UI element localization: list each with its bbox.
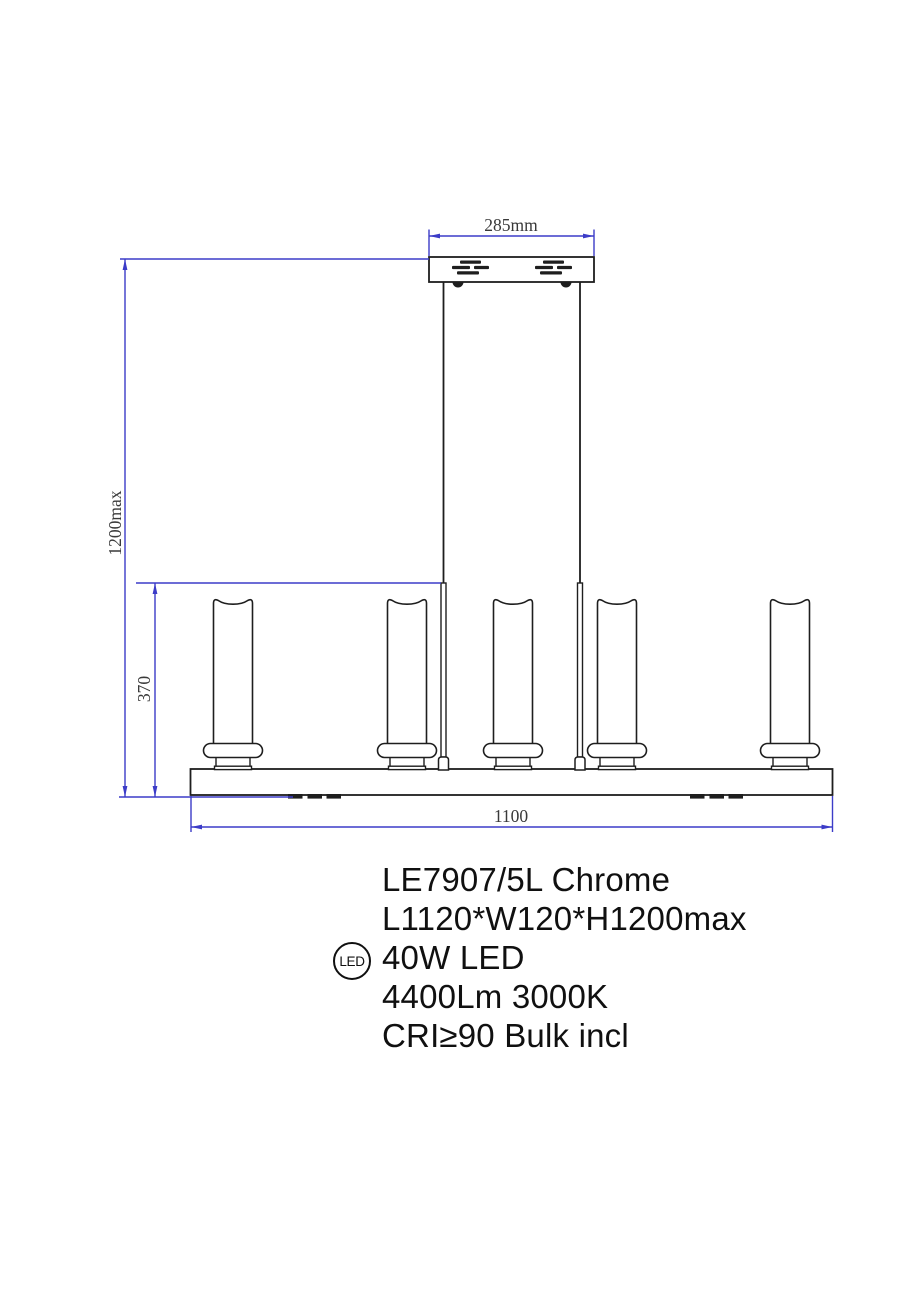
suspension-wire-left xyxy=(439,283,449,771)
ceiling-canopy xyxy=(429,257,594,288)
fixture-outline xyxy=(191,257,833,799)
dimension-canopy-width: 285mm xyxy=(429,215,594,256)
dim-label-fixture-length: 1100 xyxy=(494,806,529,826)
led-badge-label: LED xyxy=(339,954,364,969)
dim-label-canopy-width: 285mm xyxy=(484,215,538,235)
screw-head xyxy=(561,282,572,288)
lamp-shade-2 xyxy=(378,600,437,770)
spec-luminous-flux: 4400Lm 3000K xyxy=(382,977,747,1016)
spec-power: 40W LED xyxy=(382,938,747,977)
lighting-spec-sheet: 285mm 1200max 370 xyxy=(0,0,919,1300)
lamp-shade-5 xyxy=(761,600,820,770)
lamp-shade-1 xyxy=(204,600,263,770)
screw-head xyxy=(453,282,464,288)
led-badge-icon: LED xyxy=(333,942,371,980)
spec-size: L1120*W120*H1200max xyxy=(382,899,747,938)
suspension-wire-right xyxy=(575,283,585,771)
spec-cri: CRI≥90 Bulk incl xyxy=(382,1016,747,1055)
spec-model: LE7907/5L Chrome xyxy=(382,860,747,899)
lamp-shade-3 xyxy=(484,600,543,770)
lamp-shade-4 xyxy=(588,600,647,770)
dim-label-overall-height: 1200max xyxy=(105,490,125,555)
fixture-technical-drawing: 285mm 1200max 370 xyxy=(0,0,919,1300)
product-specs: LE7907/5L Chrome L1120*W120*H1200max 40W… xyxy=(382,860,747,1055)
dimension-fixture-length: 1100 xyxy=(191,796,833,832)
fixture-bar xyxy=(191,769,833,795)
dim-label-shade-height: 370 xyxy=(134,676,154,703)
dimension-overall-height: 1200max xyxy=(105,259,429,797)
